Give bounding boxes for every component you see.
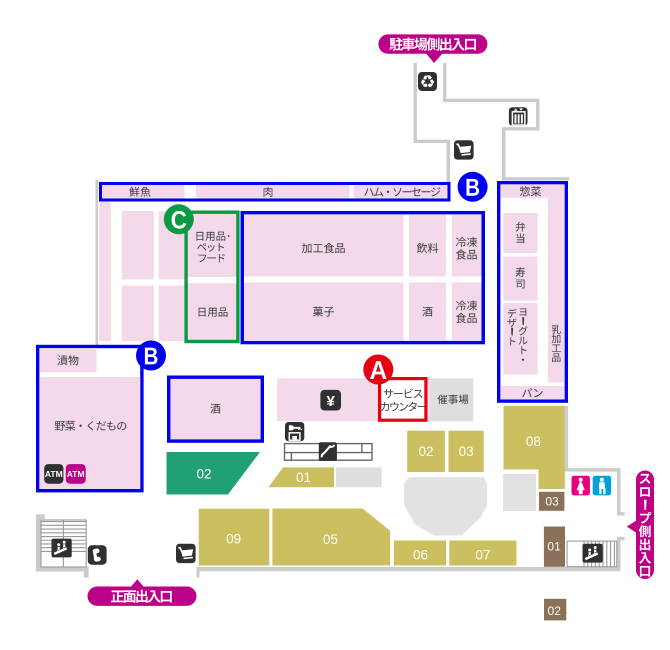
svg-text:03: 03 <box>459 444 474 459</box>
svg-text:07: 07 <box>475 547 490 562</box>
svg-text:01: 01 <box>296 470 311 485</box>
svg-text:¥: ¥ <box>327 393 336 410</box>
svg-text:08: 08 <box>526 434 541 449</box>
svg-text:02: 02 <box>196 466 211 481</box>
svg-text:02: 02 <box>548 604 562 618</box>
svg-text:06: 06 <box>413 547 428 562</box>
svg-text:02: 02 <box>418 444 433 459</box>
svg-text:ATM: ATM <box>67 469 85 479</box>
svg-text:03: 03 <box>545 495 559 509</box>
svg-text:09: 09 <box>226 531 241 546</box>
svg-text:ATM: ATM <box>45 469 63 479</box>
svg-text:05: 05 <box>323 532 338 547</box>
svg-text:01: 01 <box>547 540 561 554</box>
